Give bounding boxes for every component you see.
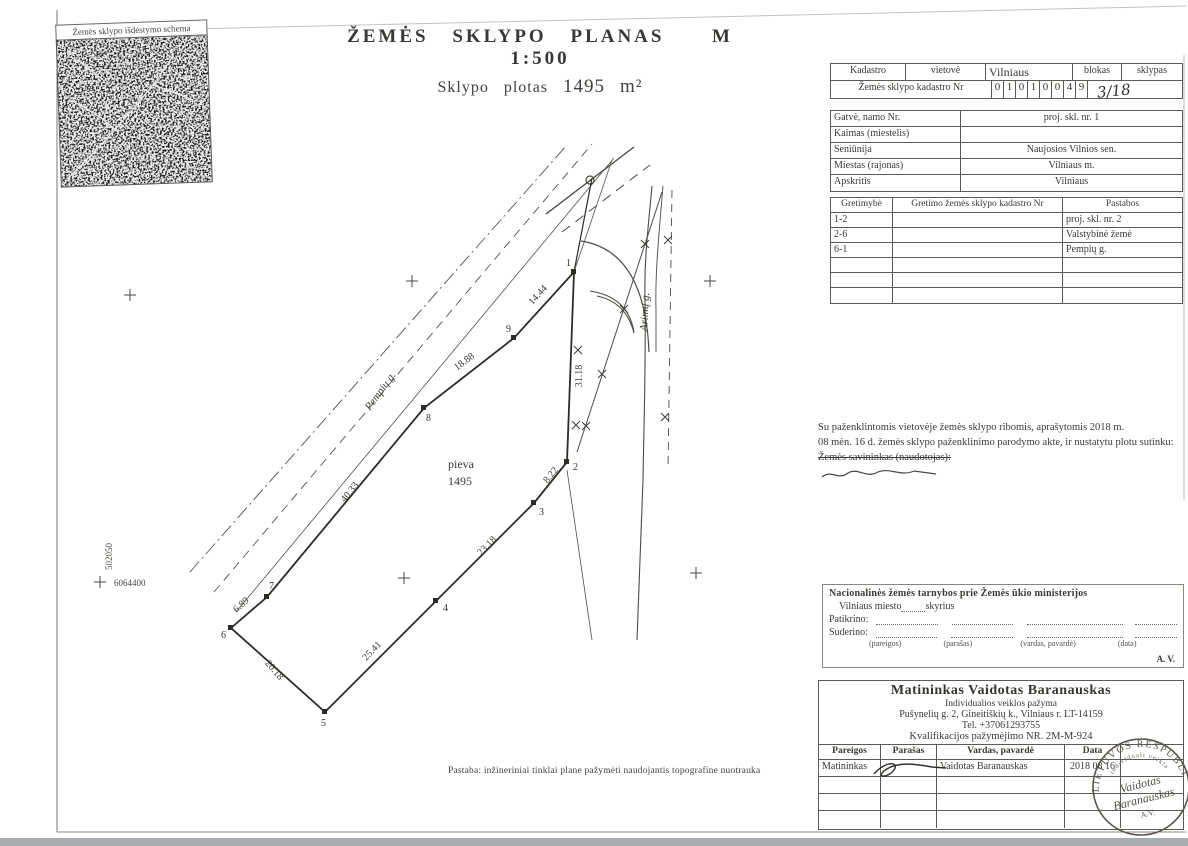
surveyor-name-title: Matininkas Vaidotas Baranauskas [819,683,1183,699]
nzt-col-pareigos: (pareigos) [869,639,901,648]
cadastral-digit: 0 [992,81,1004,98]
area-value-label: 1495 [448,474,472,488]
adjacency-cell [831,258,893,272]
address-value: Vilniaus [961,175,1182,191]
adjacency-cell [1063,273,1182,287]
adjacency-cell [831,273,893,287]
surveyor-address-line: Pušynelių g. 2, Gineitiškių k., Vilniaus… [819,709,1183,720]
svg-text:6: 6 [221,630,226,641]
cadastral-vietove-value: Vilniaus [986,64,1072,80]
agreement-owner-line: Žemės savininkas (naudotojas): [818,452,951,463]
cadastral-number-table: Kadastro vietovė Vilniaus blokas sklypas… [830,63,1183,99]
surveyor-header: Parašas [881,745,937,759]
dim-7-8: 40.33 [339,480,362,504]
table-row [831,273,1182,288]
adjacency-cell [1063,288,1182,303]
adjacency-cell [1063,258,1182,272]
adjacency-header: Pastabos [1063,198,1182,212]
title-area-unit: m² [620,76,642,97]
cadastral-sklypas-handwritten: 3/18 [1096,81,1131,98]
table-row: Seniūnija Naujosios Vilnios sen. [831,143,1182,159]
dim-1-2: 31.18 [574,365,585,388]
nzt-col-parasas: (parašas) [943,639,972,648]
boundary-extension [574,178,592,272]
title-main: ŽEMĖS SKLYPO PLANAS [347,26,664,47]
title-area-value: 1495 [563,76,605,97]
table-row: Kaimas (miestelis) [831,127,1182,143]
surveyor-activity-line: Individualios veiklos pažyma [819,699,1183,709]
adjacency-cell [893,288,1063,303]
street-edge-extension [574,160,612,272]
svg-text:7: 7 [269,581,274,592]
cadastral-row2-label: Žemės sklypo kadastro Nr [831,81,992,98]
adjacency-table: Gretimybė Gretimo žemės sklypo kadastro … [830,197,1183,304]
table-header-row: Gretimybė Gretimo žemės sklypo kadastro … [831,198,1182,213]
table-row: Gatvė, namo Nr. proj. skl. nr. 1 [831,111,1182,127]
cadastral-col-blokas: blokas [1072,64,1122,80]
dim-8-9: 18.88 [452,351,477,373]
adjacency-header: Gretimybė [831,198,893,212]
adjacency-cell: Pempių g. [1063,243,1182,257]
address-value: Naujosios Vilnios sen. [961,143,1182,158]
cadastral-digit: 0 [1016,81,1028,98]
nzt-agreed-label: Suderino: [829,627,868,638]
surveyor-signature-cell [881,760,937,776]
cadastral-col-vietove: vietovė [906,64,986,80]
adjacency-cell: proj. skl. nr. 2 [1063,213,1182,227]
address-label: Gatvė, namo Nr. [831,111,961,126]
vertex-numbers: 1 2 3 4 5 6 7 8 9 [221,258,578,729]
footnote: Pastaba: inžineriniai tinklai plane pažy… [448,766,778,776]
svg-text:1: 1 [566,258,571,269]
surveyor-name-cell: Vaidotas Baranauskas [937,760,1065,776]
svg-text:3: 3 [539,507,544,518]
agreement-line2: 08 mėn. 16 d. žemės sklypo paženklinimo … [818,435,1188,450]
nzt-col-vardas: (vardas, pavardė) [1020,639,1076,648]
agreement-line1: Su paženklintomis vietovėje žemės sklypo… [818,420,1188,435]
table-row: 1-2 proj. skl. nr. 2 [831,213,1182,228]
svg-text:8: 8 [426,413,431,424]
dim-6-7: 6.89 [231,595,251,615]
document-title: ŽEMĖS SKLYPO PLANAS M 1:500 Sklypo plota… [330,26,750,98]
utility-pole-icon [586,176,594,184]
adjacency-cell [893,273,1063,287]
dim-3-4: 23.18 [475,534,499,558]
svg-text:4: 4 [443,603,448,614]
scanned-land-plan-page: 14.44 18.88 40.33 6.89 20.18 25.41 23.18… [0,0,1188,846]
location-scheme: Žemės sklypo išdėstymo schema [55,19,213,187]
nzt-title: Nacionalinės žemės tarnybos prie Žemės ū… [829,588,1177,599]
address-label: Kaimas (miestelis) [831,127,961,142]
pempiu-street-lines [190,144,614,612]
vertex-markers [228,269,576,714]
location-scheme-photo [56,34,213,187]
nzt-office: Vilniaus miesto [839,601,901,612]
svg-text:5: 5 [321,718,326,729]
scan-edge-artifact [0,838,1188,846]
dim-2-3: 8.22 [541,465,561,486]
adjacency-cell [893,228,1063,242]
adjacency-cell [893,243,1063,257]
address-table: Gatvė, namo Nr. proj. skl. nr. 1 Kaimas … [830,110,1183,192]
cadastral-digit: 4 [1064,81,1076,98]
table-row: 2-6 Valstybinė žemė [831,228,1182,243]
surveyor-header: Vardas, pavardė [937,745,1065,759]
cadastral-digit: 0 [1040,81,1052,98]
overhead-line [546,147,650,232]
land-use-label: pieva [448,457,475,471]
adjacency-cell: 6-1 [831,243,893,257]
adjacency-cell: Valstybinė žemė [1063,228,1182,242]
nzt-col-data: (data) [1118,639,1137,648]
dimension-labels: 14.44 18.88 40.33 6.89 20.18 25.41 23.18… [231,283,585,682]
cadastral-digit: 1 [1004,81,1016,98]
plot-boundary [231,272,574,712]
owner-signature [818,465,968,483]
address-value: Vilniaus m. [961,159,1182,174]
dim-5-6: 20.18 [262,658,285,682]
cadastral-digit: 1 [1028,81,1040,98]
address-label: Seniūnija [831,143,961,158]
cadastral-col-kadastro: Kadastro [831,64,906,80]
street-label-arimu: Arimų g. [638,292,652,332]
cadastral-digit: 9 [1076,81,1088,98]
adjacency-cell [831,288,893,303]
address-value: proj. skl. nr. 1 [961,111,1182,126]
coord-northing-label: 6064400 [114,578,146,588]
owner-agreement-text: Su paženklintomis vietovėje žemės sklypo… [818,420,1188,488]
nzt-checked-label: Patikrino: [829,614,868,625]
street-label-pempiu: Pempių g. [362,370,399,414]
svg-text:2: 2 [573,462,578,473]
svg-text:9: 9 [506,324,511,335]
address-label: Apskritis [831,175,961,191]
arimu-street-lines [567,186,672,640]
address-value [961,127,1182,142]
table-row: Apskritis Vilniaus [831,175,1182,191]
address-label: Miestas (rajonas) [831,159,961,174]
adjacency-cell: 1-2 [831,213,893,227]
surveyor-header: Pareigos [819,745,881,759]
adjacency-header: Gretimo žemės sklypo kadastro Nr [893,198,1063,212]
nzt-office-suffix: skyrius [925,601,954,612]
surveyor-phone-line: Tel. +37061293755 [819,720,1183,731]
table-row [831,288,1182,303]
table-row [831,258,1182,273]
table-row: 6-1 Pempių g. [831,243,1182,258]
adjacency-cell: 2-6 [831,228,893,242]
dim-9-1: 14.44 [526,283,549,307]
grid-crosses [94,275,716,588]
table-row: Miestas (rajonas) Vilniaus m. [831,159,1182,175]
dim-4-5: 25.41 [360,639,384,663]
title-area-prefix: Sklypo plotas [437,79,548,96]
coord-easting-label: 502050 [104,543,114,571]
stamp-av-mark: A.V. [1140,808,1156,820]
nzt-av-mark: A. V. [1157,654,1175,664]
boundary-x-marks [572,236,672,430]
surveyor-round-stamp: LIETUVOS RESPUBLIKA individuali veikla V… [1086,732,1188,842]
cadastral-digit: 0 [1052,81,1064,98]
adjacency-cell [893,213,1063,227]
national-land-service-block: Nacionalinės žemės tarnybos prie Žemės ū… [822,584,1184,668]
cadastral-col-sklypas: sklypas [1122,64,1182,80]
adjacency-cell [893,258,1063,272]
